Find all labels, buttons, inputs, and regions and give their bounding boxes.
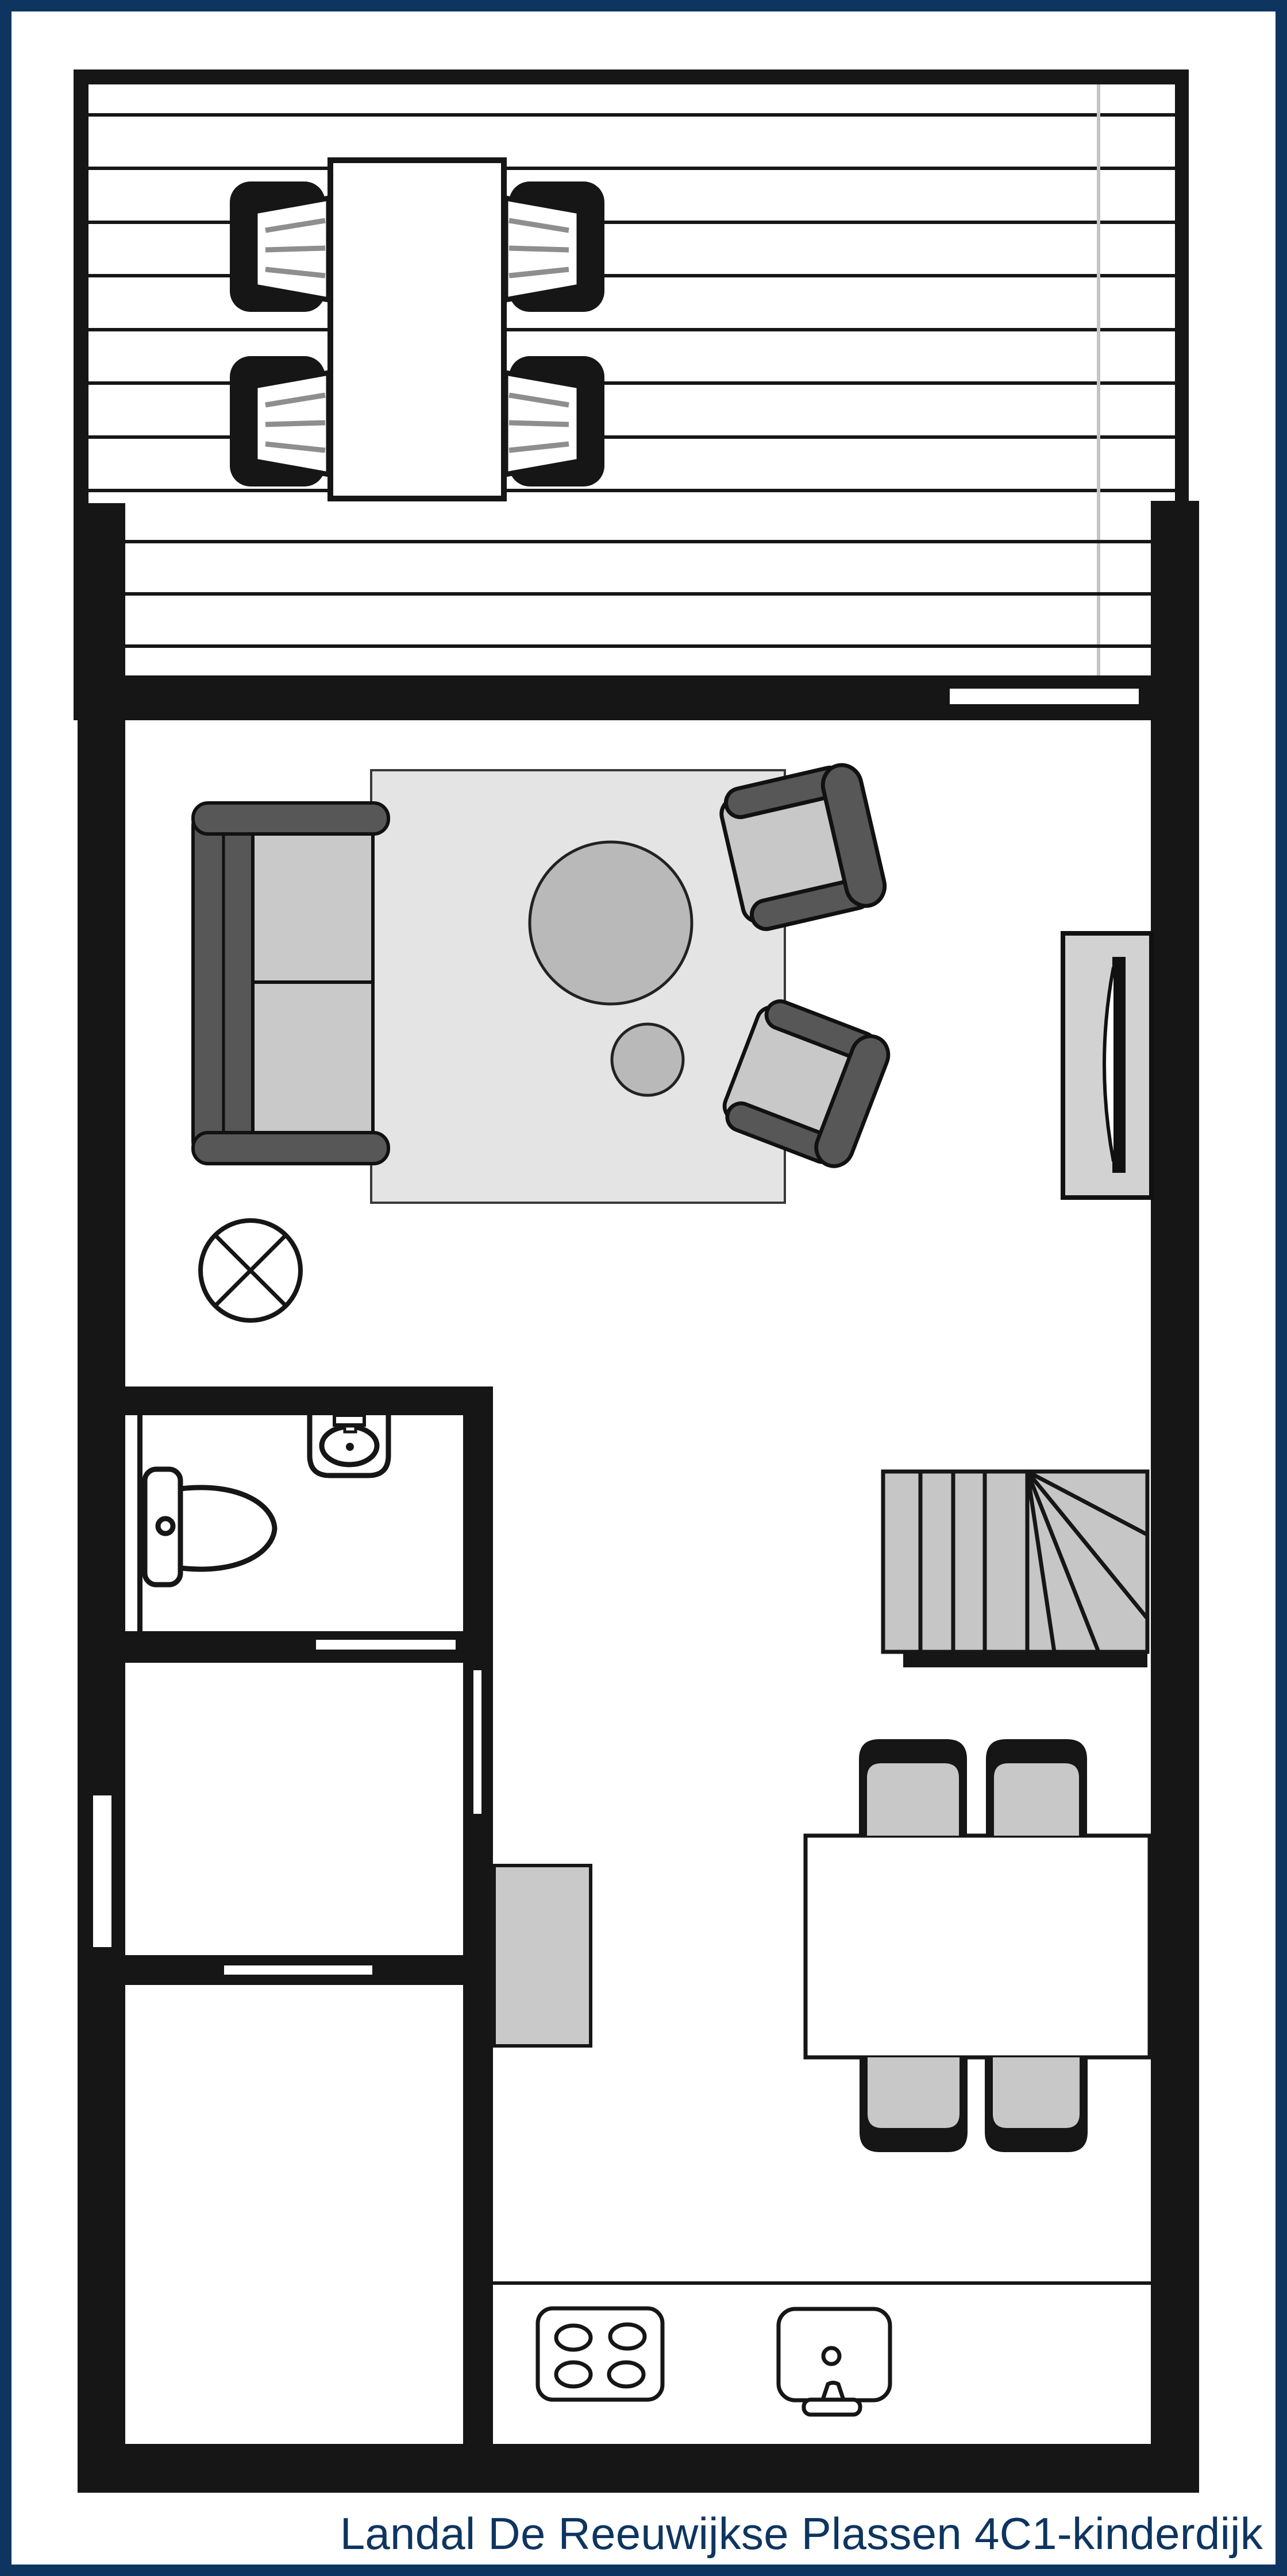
svg-text:Landal De Reeuwijkse Plassen 4: Landal De Reeuwijkse Plassen 4C1-kinderd… (340, 2508, 1263, 2559)
